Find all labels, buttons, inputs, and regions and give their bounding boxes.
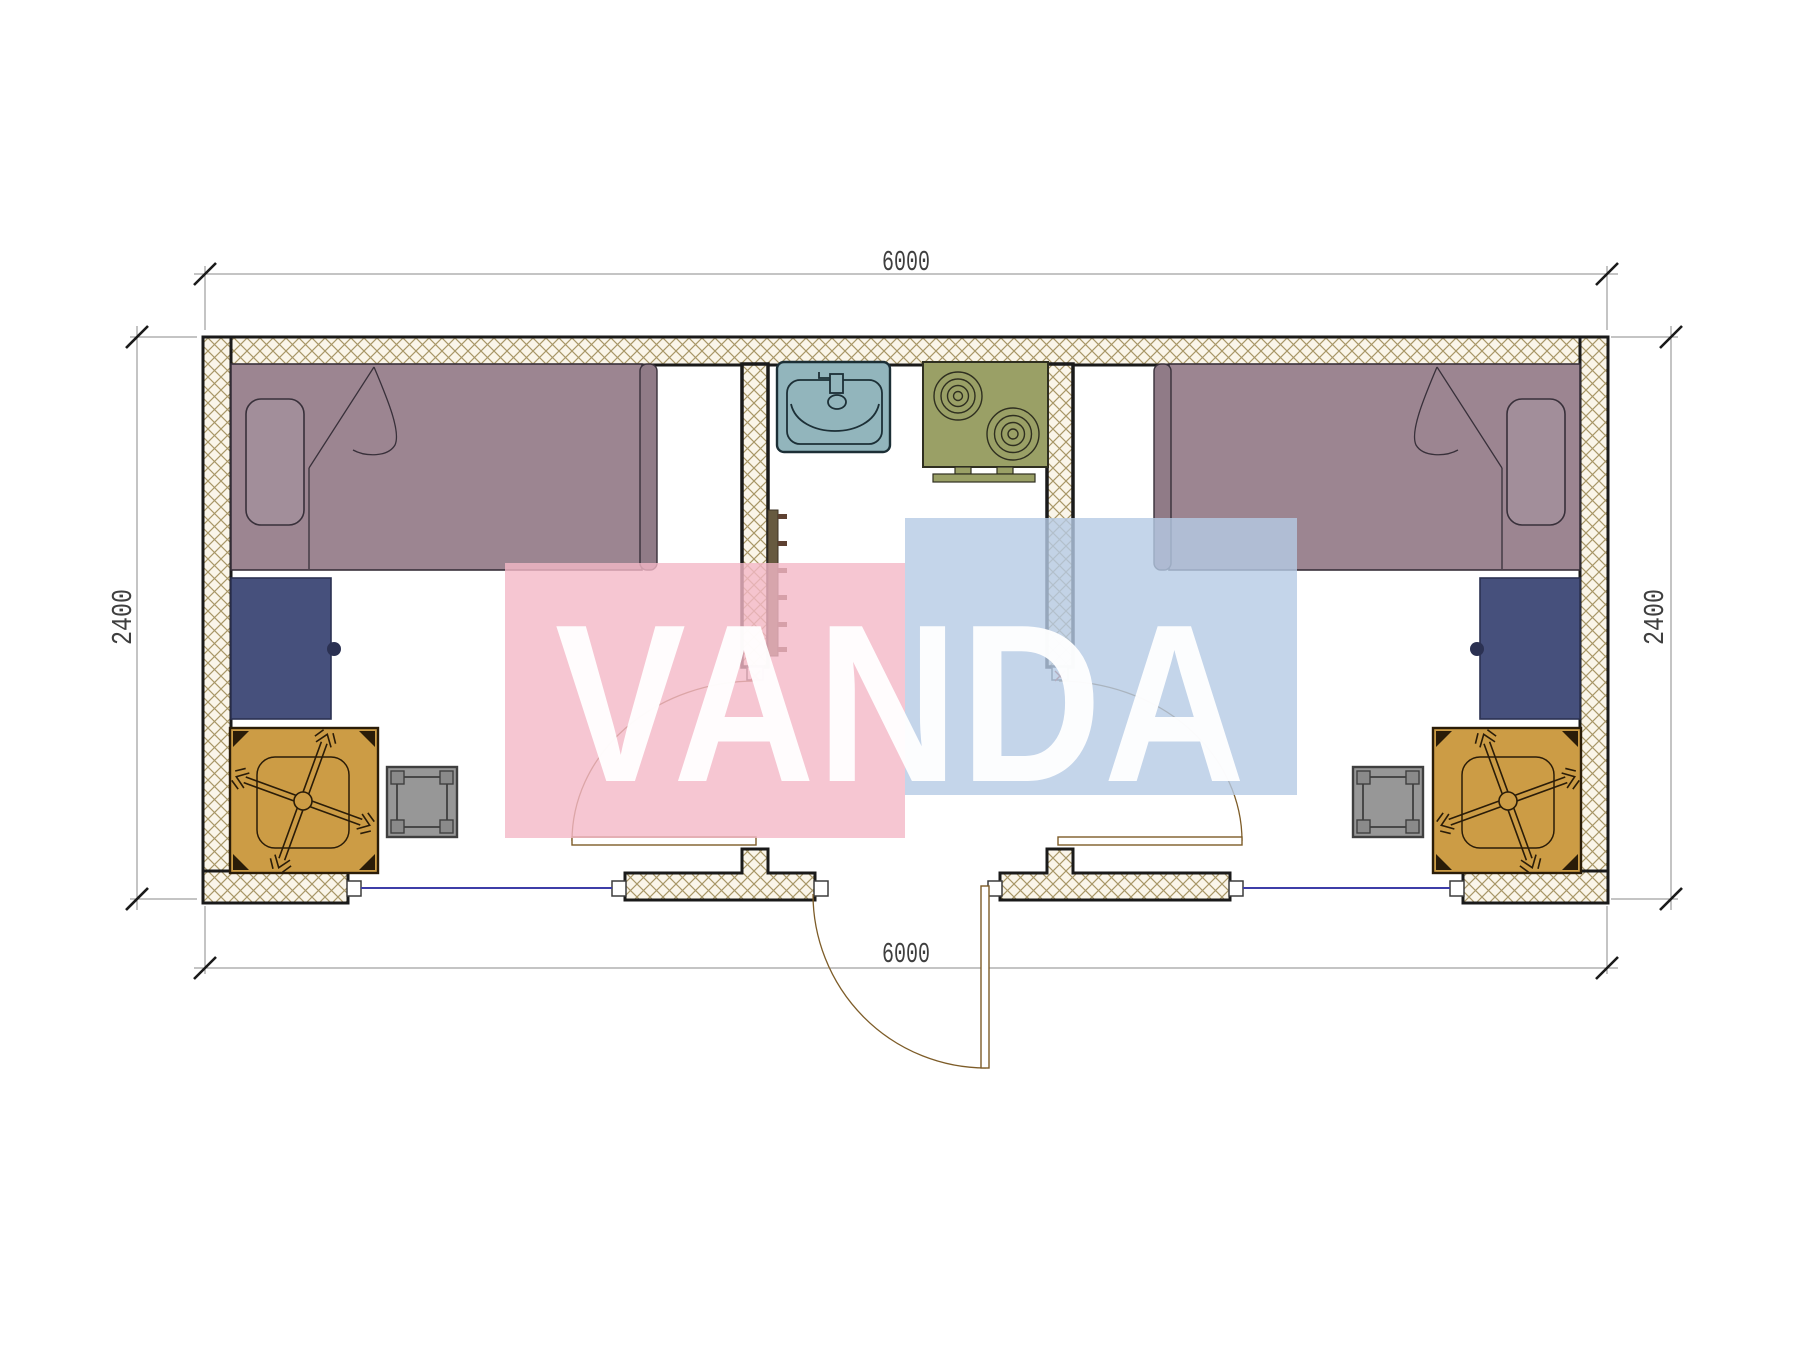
stool-leg	[1357, 771, 1370, 784]
stool-leg	[440, 820, 453, 833]
desk-knob	[327, 642, 341, 656]
door-leaf	[1058, 837, 1242, 845]
dimension-top: 6000	[194, 246, 1618, 330]
dimension-label-right: 2400	[1639, 589, 1672, 645]
desk-knob	[1470, 642, 1484, 656]
dimension-label-bottom: 6000	[882, 938, 930, 971]
pillow	[1507, 399, 1565, 525]
dimension-left: 2400	[107, 326, 197, 910]
window-left	[347, 881, 626, 896]
door-jamb	[814, 881, 828, 896]
watermark: VANDA	[505, 518, 1297, 838]
office-chair-right	[1433, 728, 1581, 875]
wall-right	[1580, 337, 1608, 903]
stool-leg	[391, 820, 404, 833]
desk-top	[1480, 578, 1580, 719]
door-leaf	[572, 837, 756, 845]
faucet	[830, 374, 843, 393]
stool-leg	[440, 771, 453, 784]
dimension-right: 2400	[1611, 326, 1682, 910]
stool-leg	[1357, 820, 1370, 833]
sink	[777, 362, 890, 452]
floor-plan-svg: 6000 6000 2400 2400	[0, 0, 1800, 1350]
pillow	[246, 399, 304, 525]
dimension-bottom: 6000	[194, 906, 1618, 979]
door-leaf	[981, 886, 989, 1068]
stool-leg	[391, 771, 404, 784]
stool-leg	[1406, 771, 1419, 784]
door-jamb	[988, 881, 1002, 896]
stool-right	[1353, 767, 1423, 837]
wall-top	[203, 337, 1608, 365]
desk-right	[1470, 578, 1580, 719]
stool-left	[387, 767, 457, 837]
window-jamb	[347, 881, 361, 896]
entrance-door	[813, 881, 1002, 1068]
wall-bottom-right-segment	[1000, 849, 1230, 900]
chair-hub	[294, 792, 312, 810]
stove	[923, 362, 1048, 482]
window-right	[1229, 881, 1464, 896]
wall-bottom-right-corner	[1463, 871, 1608, 903]
office-chair-left	[230, 728, 378, 875]
bed-footboard	[640, 364, 657, 570]
stool-leg	[1406, 820, 1419, 833]
floor-plan-canvas: 6000 6000 2400 2400	[0, 0, 1800, 1350]
window-jamb	[1450, 881, 1464, 896]
watermark-text: VANDA	[555, 577, 1247, 829]
stove-bracket	[955, 467, 971, 474]
window-jamb	[1229, 881, 1243, 896]
stove-bracket	[997, 467, 1013, 474]
chair-hub	[1499, 792, 1517, 810]
desk-left	[231, 578, 341, 719]
window-jamb	[612, 881, 626, 896]
door-swing-arc	[813, 894, 986, 1068]
bed-left	[231, 364, 657, 570]
stove-handle	[933, 474, 1035, 482]
dimension-label-left: 2400	[107, 589, 140, 645]
wall-bottom-left-corner	[203, 871, 348, 903]
wall-bottom-left-segment	[625, 849, 815, 900]
dimension-label-top: 6000	[882, 246, 930, 279]
desk-top	[231, 578, 331, 719]
wall-left	[203, 337, 231, 903]
